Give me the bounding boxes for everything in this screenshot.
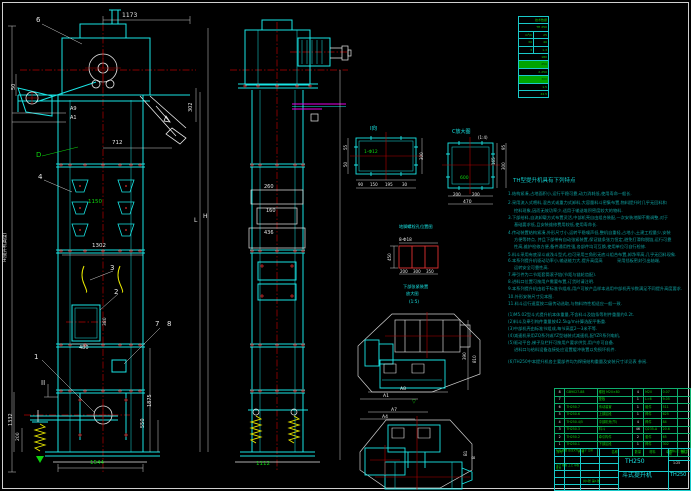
note-line: 2.采用流入式喂料,混合式或重力式卸料,大容量料斗密集布置,物料提升时几乎无回料… xyxy=(508,201,667,205)
bom-cell: 5 xyxy=(555,411,565,419)
bom-cell: 0.07 xyxy=(661,389,677,397)
bom-cell: TH250.7 xyxy=(565,404,597,412)
bom-cell: 组件 xyxy=(644,404,661,412)
dim-label: 1 xyxy=(34,354,38,361)
bom-cell: 65 xyxy=(661,434,677,442)
dim-label: C放大图 xyxy=(452,130,471,135)
bom-cell: Q235-A xyxy=(644,426,661,434)
tech-table-cell: 技术数据 xyxy=(519,17,548,23)
dim-label: ▽ xyxy=(412,400,416,405)
tech-table-cell: 2-250 xyxy=(519,69,548,75)
tech-table-row: TH 250 xyxy=(519,23,548,30)
side-elevator-view xyxy=(230,20,351,470)
titleblock-sheet-info: 共1张 第1张 xyxy=(583,480,600,483)
dim-label: 地脚螺栓孔位置图 xyxy=(399,225,433,229)
bom-cell xyxy=(678,419,691,427)
dim-label: B1 xyxy=(464,451,468,456)
dim-label: 下部张紧装置 xyxy=(403,285,428,289)
tech-table-cell: 40 xyxy=(533,39,548,45)
tech-table-cell: 3 xyxy=(519,47,533,53)
dim-label: (1:5) xyxy=(409,300,419,304)
dim-label: 1544 xyxy=(90,461,104,467)
dim-label: 1875 xyxy=(148,394,153,407)
dim-label: 7 xyxy=(155,321,159,328)
tech-table-row: 250 xyxy=(519,60,548,67)
cad-sheet: 技术数据TH 250m³/h25304031.31802502-2503001.… xyxy=(0,0,691,491)
dim-label: A8 xyxy=(400,388,406,393)
dim-label: 3 xyxy=(110,265,114,272)
dim-label: II xyxy=(41,380,45,387)
dim-label: 300 xyxy=(420,152,424,160)
dim-label: 600 xyxy=(460,177,469,182)
dim-label: I向 xyxy=(370,127,377,133)
bom-cell xyxy=(565,396,597,404)
bom-cell: 1 xyxy=(632,404,644,412)
bom-cell: 20.6 xyxy=(661,426,677,434)
dim-label: 380 xyxy=(104,317,109,326)
note-line: 基础要求低,且安装维修费用较低,使用寿命长. xyxy=(514,223,598,227)
note-line: 6.本系列提升机驱动功率小,输送能力大,提升高度高 xyxy=(508,259,603,263)
detail-view-I xyxy=(348,132,422,188)
bom-cell: 料斗 xyxy=(597,426,632,434)
dim-label: 200 xyxy=(400,270,408,274)
dim-label: 160 xyxy=(266,209,276,214)
bom-cell: 1 xyxy=(632,411,644,419)
bom-cell: 9.05 xyxy=(661,396,677,404)
tech-table-cell: 300 xyxy=(519,76,548,82)
bom-cell: 6 xyxy=(555,404,565,412)
dim-label: 350 xyxy=(426,270,434,274)
dim-label: 390 xyxy=(463,352,467,360)
titleblock-sign-rows: 设计 校核 工艺 审核 批准 xyxy=(556,465,580,470)
dim-label: 810 xyxy=(473,355,477,363)
note-line: 9.本系列提升机由若干标准节组成,用户可按产品样本选用中部机壳节数满足不同提升高… xyxy=(508,287,682,291)
bom-row: 4TH250.4/5中部机壳(节)4焊件84 xyxy=(555,419,691,427)
note-line: 3.下部给料,自流卸载方式布置灵活,中部机壳自由组合装配,—次安装地脚不需调整,… xyxy=(508,216,668,220)
bom-cell: 8 xyxy=(555,389,565,397)
tech-table-row: 44.5 xyxy=(519,90,548,97)
bom-cell: TH250.2 xyxy=(565,434,597,442)
dim-label: 8 xyxy=(167,321,171,328)
bom-cell: TH250.4/5 xyxy=(565,419,597,427)
tech-table-row: 技术数据 xyxy=(519,17,548,23)
bom-cell: 46 xyxy=(632,426,644,434)
bom-cell xyxy=(678,404,691,412)
dim-label: 200 xyxy=(472,193,480,197)
note-line: 性高,维护检修方便,备件通用性强,各部件均可互换,使用单位可自行检修. xyxy=(514,245,646,249)
dim-label: 150 xyxy=(370,183,378,187)
dim-label: A9 xyxy=(70,107,77,112)
dim-label: 30 xyxy=(402,183,407,187)
bom-cell xyxy=(678,389,691,397)
tech-table-cell: 30 xyxy=(519,39,533,45)
bom-cell: 84 xyxy=(661,419,677,427)
dim-label: 2 xyxy=(114,289,118,296)
dim-label: 300 xyxy=(413,270,421,274)
tech-table-row: 180 xyxy=(519,53,548,60)
note-line: 11.料斗运行速度按二级传动选取,与物料特性相适应—般—致. xyxy=(508,302,622,306)
note-line: (4)减速机采用ZQ系列或YZ型轴装式减速机,配YZR系列电机, xyxy=(508,334,620,338)
bom-cell: L=6 xyxy=(644,396,661,404)
titleblock-revision-row: 标记 处数 更改文件号 签字 日期 xyxy=(556,450,618,453)
bom-cell: 4 xyxy=(555,419,565,427)
dim-label: A1 xyxy=(70,116,77,121)
note-line: 采用挡板密封引出轴端, xyxy=(617,259,660,263)
dim-label: 712 xyxy=(112,141,123,147)
tech-table-row: 1.5 xyxy=(519,83,548,90)
dim-label: 470 xyxy=(463,201,472,206)
note-line: (2)料斗及牵引构件重量按42.5kg/m计算选配平衡重. xyxy=(508,320,606,324)
bom-cell xyxy=(678,396,691,404)
dim-label: (1:4) xyxy=(478,136,488,140)
note-line: 方便等特点, 并且下部带有自动张紧装置,保证链条张力恒定,避免打滑和脱链,运行可… xyxy=(514,238,671,242)
dim-label: 1332 xyxy=(9,413,14,426)
detail-boot-unit xyxy=(360,412,472,490)
dim-label: 200 xyxy=(17,432,22,441)
dim-label: 550 xyxy=(141,418,146,428)
drawing-number: TH250 xyxy=(670,473,686,478)
bom-cell: 焊件 xyxy=(644,411,661,419)
bom-cell: 套件 xyxy=(644,434,661,442)
bom-cell: TH250.6 xyxy=(565,411,597,419)
bom-cell: 牵引构件 xyxy=(597,434,632,442)
bom-cell xyxy=(678,434,691,442)
tech-table-row: m³/h25 xyxy=(519,31,548,38)
dim-label: L xyxy=(194,218,197,224)
tech-table-cell: m³/h xyxy=(519,32,533,38)
dim-label: 450 xyxy=(388,253,392,261)
note-line: 5.料斗采用有底深斗或浅斗型式,也可采用三角形无底斗组合布置,卸净率高,几乎无回… xyxy=(508,253,676,257)
dim-label: 50 xyxy=(344,162,348,167)
tech-table-cell: 25 xyxy=(533,32,548,38)
dim-label: 165 xyxy=(492,157,496,165)
dim-label: 55 xyxy=(344,145,348,150)
dim-label: D xyxy=(36,152,41,159)
bom-cell: 511 xyxy=(661,404,677,412)
bom-cell: 3 xyxy=(555,426,565,434)
dim-label: 放大图 xyxy=(406,292,419,296)
note-line: (5)驱动平台,梯子及栏杆可按用户要求供货,用户亦可自备. xyxy=(508,341,614,345)
dim-label: B xyxy=(472,456,476,459)
bom-row: 5TH250.6上部区段1焊件625 xyxy=(555,411,691,419)
note-line: (3)中部机壳由标准节组成,每节高度2—3米不等. xyxy=(508,327,597,331)
dim-label: 1112 xyxy=(256,462,270,468)
dim-label: 260 xyxy=(264,185,274,190)
dim-label: 1302 xyxy=(92,244,106,250)
note-line: 进料口与给料设备连接处应设置缓冲装置以免损坏机件. xyxy=(514,348,616,352)
dim-label: 1150 xyxy=(88,200,102,206)
main-elevator-front-view xyxy=(8,10,208,472)
tech-table-cell: TH 250 xyxy=(519,24,548,30)
bom-cell: 螺栓 M20×80 xyxy=(597,389,632,397)
dim-label: A7 xyxy=(391,409,397,414)
bom-row: 6TH250.7传动装置1组件511 xyxy=(555,404,691,412)
bom-cell: 上部区段 xyxy=(597,411,632,419)
bom-cell: 4 xyxy=(632,389,644,397)
dim-label: 1-Φ12 xyxy=(364,151,378,156)
dim-label: 8-Φ18 xyxy=(399,238,412,242)
bom-cell: 2 xyxy=(632,434,644,442)
note-line: (6)TH250中本提升机各主要部件均为焊接结构重量及安装尺寸详见表 参阅. xyxy=(508,360,648,364)
dim-label: 480 xyxy=(79,346,89,351)
note-line: 运转安全可靠性高. xyxy=(514,266,549,270)
bom-cell: 垫板 xyxy=(597,396,632,404)
note-line: (1)M5.02型斗式提升机本体重量,不含料斗及链条等附件重量约0.2t. xyxy=(508,313,634,317)
bom-row: 2TH250.2牵引构件2套件65 xyxy=(555,434,691,442)
bom-row: 7垫板1L=69.05 xyxy=(555,396,691,404)
dim-label: 300 xyxy=(502,162,506,170)
dim-label: 50 xyxy=(12,84,17,90)
stamp-grid-label: 图样标记 重量 比例 xyxy=(669,451,689,456)
bom-cell xyxy=(678,411,691,419)
dim-label: 4 xyxy=(38,174,42,181)
note-line: 1.结构紧凑,占地面积小,运行平稳可靠,动力消耗低,使用寿命—般长. xyxy=(508,192,632,196)
dim-label: 195 xyxy=(385,183,393,187)
bom-cell xyxy=(678,426,691,434)
dim-label: 436 xyxy=(264,231,274,236)
dim-label: 200 xyxy=(453,193,461,197)
notes-title: TH型提升机具有下列特点 xyxy=(513,179,576,185)
note-line: 4.传动装置结构紧凑,外形尺寸小,运转平稳噪声低,整机自重轻,占地小,土建工程量… xyxy=(508,231,671,235)
tech-table-cell: 44.5 xyxy=(519,91,548,97)
note-line: 挖料现象,因而无效功率少,适用于输送堆积密度较大的物料. xyxy=(514,209,623,213)
tech-table-row: 31.3 xyxy=(519,46,548,53)
dim-label: H xyxy=(203,214,208,220)
bom-cell: 2 xyxy=(555,434,565,442)
note-line: 8.进料口位置可按用户需要布置,订货时请注明. xyxy=(508,280,594,284)
dim-label: A4 xyxy=(382,416,388,421)
tech-table-row: 300 xyxy=(519,75,548,82)
bom-row: 3TH250.3料斗46Q235-A20.6 xyxy=(555,426,691,434)
tech-table-cell: 1.5 xyxy=(519,84,548,90)
bom-cell: 1 xyxy=(632,396,644,404)
dim-label: 6 xyxy=(36,17,40,24)
product-name: 斗式提升机 xyxy=(622,473,652,479)
bom-cell: 中部机壳(节) xyxy=(597,419,632,427)
drawing-scale: 1:25 xyxy=(673,462,680,465)
dim-label: 302 xyxy=(189,102,194,112)
tech-table-cell: 1.3 xyxy=(533,47,548,53)
bom-cell: 焊件 xyxy=(644,419,661,427)
technical-data-table: 技术数据TH 250m³/h25304031.31802502-2503001.… xyxy=(518,16,549,98)
bom-row: 8GB9027-88螺栓 M20×804M200.07 xyxy=(555,389,691,397)
title-block: 标记 处数 更改文件号 签字 日期 设计 校核 工艺 审核 批准 共1张 第1张… xyxy=(554,448,691,491)
dim-label: 95 xyxy=(502,145,506,150)
dim-label: 90 xyxy=(358,183,363,187)
bom-cell: TH250.3 xyxy=(565,426,597,434)
tech-table-cell: 180 xyxy=(519,54,548,60)
dim-label: 1173 xyxy=(122,13,137,19)
note-line: 10.外形安装尺寸见本图. xyxy=(508,295,554,299)
bom-cell: GB9027-88 xyxy=(565,389,597,397)
dim-label: A1 xyxy=(383,395,389,400)
note-line: 7.牵引件为二节距套筒滚子链(节距与链轮齿配). xyxy=(508,273,596,277)
dim-label: H(提升机高度) xyxy=(4,233,9,262)
bom-cell: 7 xyxy=(555,396,565,404)
product-model: TH250 xyxy=(625,459,645,465)
bom-cell: M20 xyxy=(644,389,661,397)
tech-table-row: 2-250 xyxy=(519,68,548,75)
bom-cell: 4 xyxy=(632,419,644,427)
tech-table-cell: 250 xyxy=(519,61,548,67)
bom-cell: 625 xyxy=(661,411,677,419)
bom-cell: 传动装置 xyxy=(597,404,632,412)
tech-table-row: 3040 xyxy=(519,38,548,45)
bom-table: 8GB9027-88螺栓 M20×804M200.077垫板1L=69.056T… xyxy=(554,388,691,457)
